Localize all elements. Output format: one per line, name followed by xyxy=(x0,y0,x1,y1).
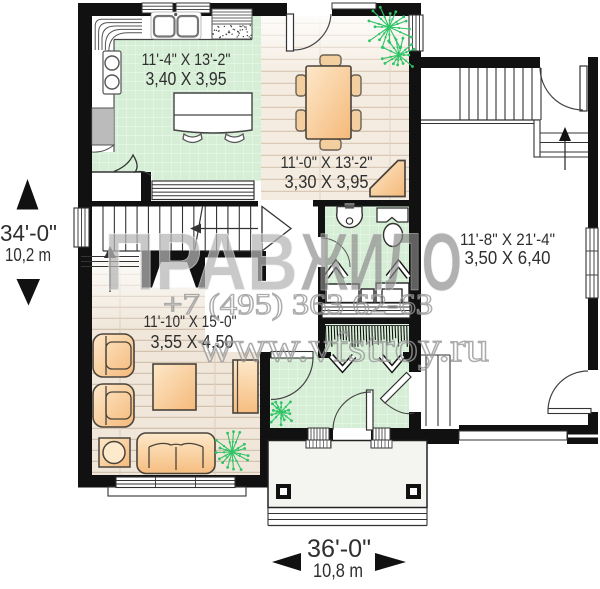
svg-text:36'-0": 36'-0" xyxy=(307,535,371,563)
svg-text:11'-8" X 21'-4": 11'-8" X 21'-4" xyxy=(460,230,555,249)
svg-text:11'-4" X 13'-2": 11'-4" X 13'-2" xyxy=(142,50,231,69)
svg-text:3,40 X 3,95: 3,40 X 3,95 xyxy=(146,69,227,89)
svg-text:+7 (495) 363 62-63: +7 (495) 363 62-63 xyxy=(163,288,433,321)
svg-text:10,2 m: 10,2 m xyxy=(5,245,51,265)
svg-text:3,50 X 6,40: 3,50 X 6,40 xyxy=(465,248,551,268)
svg-text:11'-0" X 13'-2": 11'-0" X 13'-2" xyxy=(281,153,373,172)
svg-text:www.vfstroy.ru: www.vfstroy.ru xyxy=(199,325,489,371)
svg-text:34'-0": 34'-0" xyxy=(0,220,57,246)
svg-text:3,30 X 3,95: 3,30 X 3,95 xyxy=(285,172,369,192)
svg-text:10,8 m: 10,8 m xyxy=(313,561,363,582)
